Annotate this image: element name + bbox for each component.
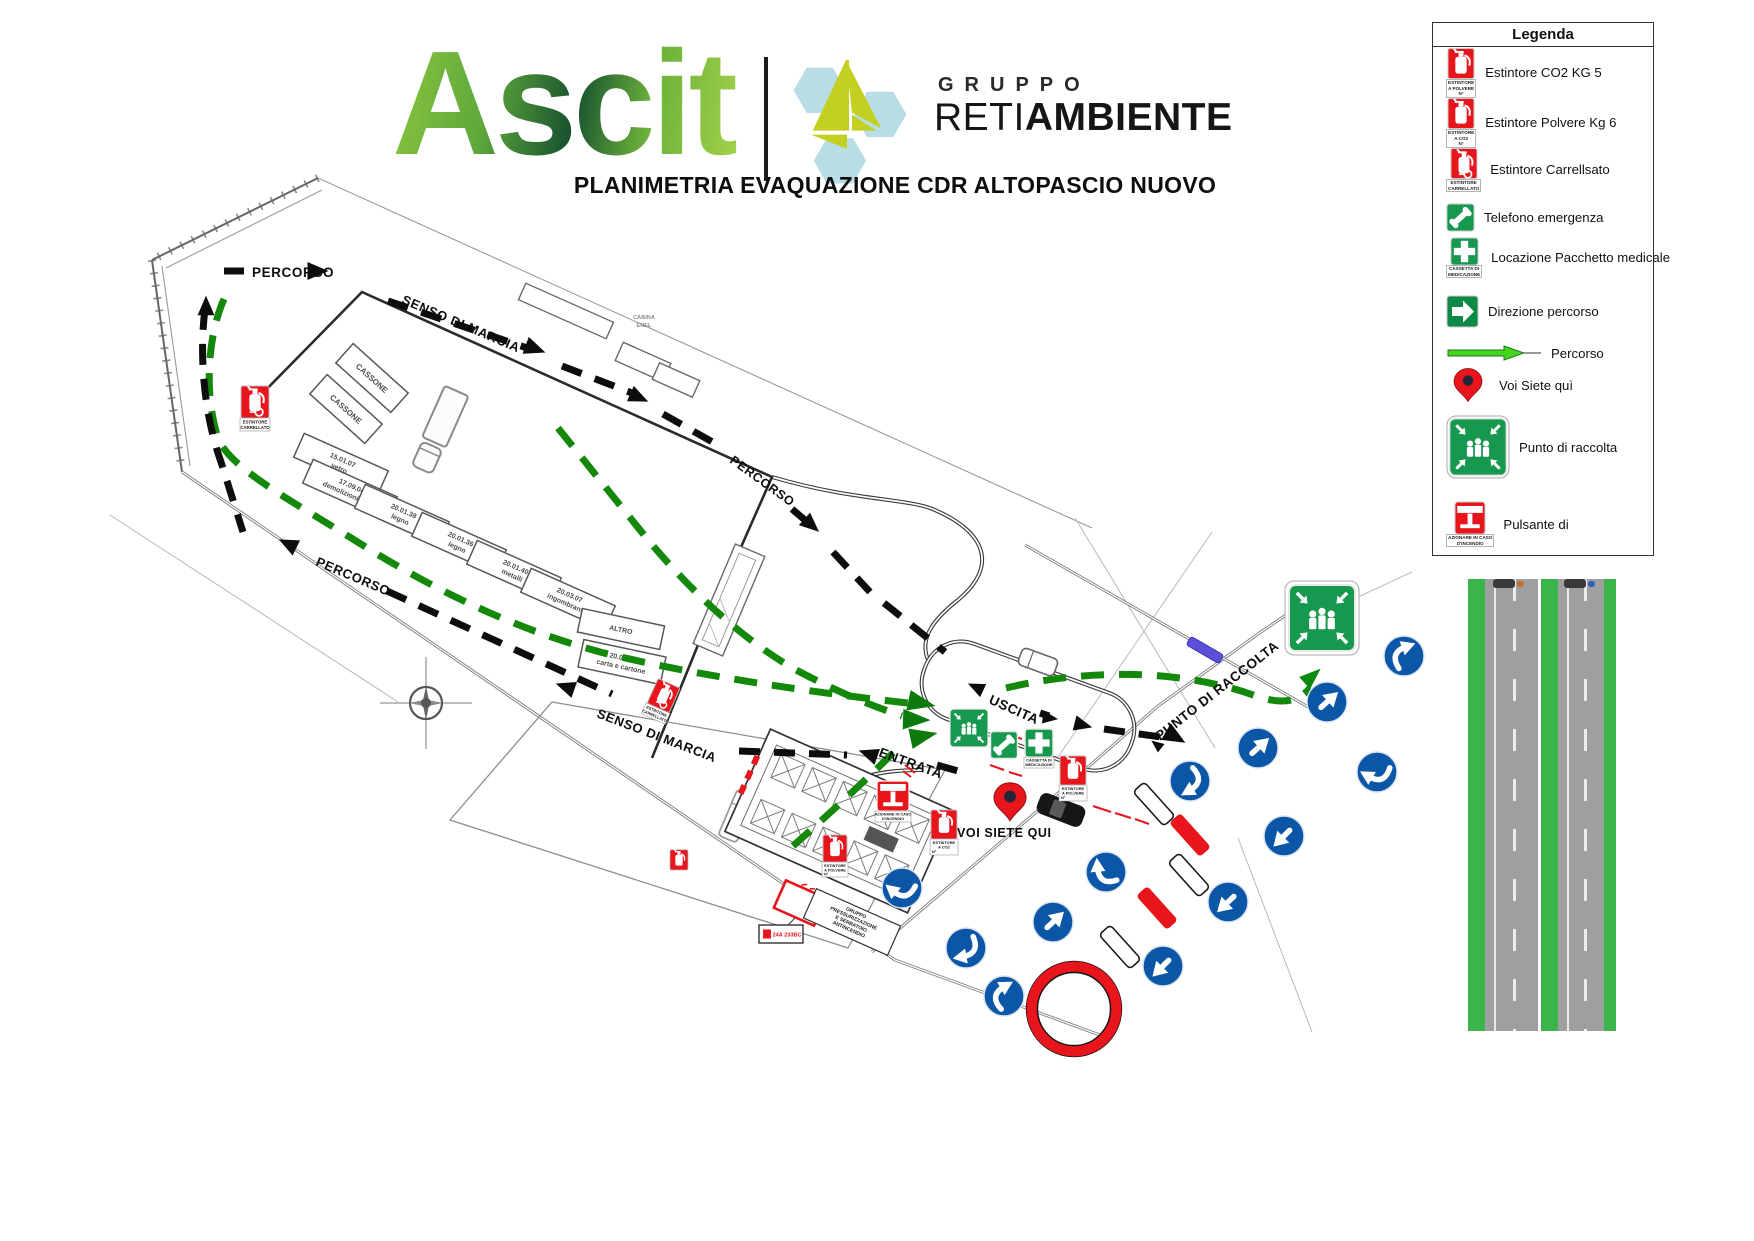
cabina-enel-structures: CABINA ENEL — [518, 283, 699, 397]
svg-text:ESTINTORE: ESTINTORE — [243, 420, 268, 425]
property-fence — [152, 178, 322, 472]
alarm-button-sign: AZIONARE IN CASO D'INCENDIO — [875, 781, 912, 822]
white-car — [1017, 647, 1059, 677]
svg-text:N°: N° — [824, 873, 829, 877]
extinguisher-powder-sign — [670, 850, 688, 870]
direction-sign — [1086, 852, 1126, 892]
traffic-routes-black — [198, 262, 1191, 771]
direction-sign — [984, 975, 1024, 1016]
svg-text:N°: N° — [1061, 795, 1066, 800]
direction-sign — [1238, 728, 1278, 768]
svg-text:AZIONARE IN CASO: AZIONARE IN CASO — [875, 813, 912, 817]
cabina-enel-label: ENEL — [637, 323, 653, 329]
direction-sign — [1170, 761, 1210, 802]
direction-sign — [1356, 752, 1397, 792]
percorso-left-label: PERCORSO — [314, 554, 393, 599]
percorso-top-label: PERCORSO — [252, 265, 334, 280]
compass — [380, 657, 472, 749]
direction-sign — [1208, 882, 1248, 922]
assembly-point-sign — [1285, 581, 1359, 655]
you-are-here-pin — [994, 783, 1026, 821]
direction-sign — [1264, 816, 1304, 856]
svg-text:MEDICAZIONE: MEDICAZIONE — [1025, 762, 1053, 767]
assembly-point-sign — [950, 709, 988, 747]
evacuation-plan-page: Ascit GRUPPO RETIAMBIENTE PLANIMETRIA EV… — [0, 0, 1754, 1241]
gates-and-medians — [1099, 636, 1224, 969]
extinguisher-class-label: 24A 233BC — [759, 925, 803, 943]
site-plan: CABINA ENEL CASSONE CASSONE — [0, 0, 1754, 1241]
direction-sign — [946, 928, 986, 968]
uscita-label: USCITA — [987, 692, 1041, 727]
direction-sign — [1384, 636, 1424, 676]
svg-text:A CO2: A CO2 — [938, 845, 951, 850]
extinguisher-wheeled-sign: ESTINTORE CARRELLATO — [240, 386, 270, 431]
svg-text:N°: N° — [932, 849, 937, 854]
direction-sign — [1143, 946, 1183, 986]
extinguisher-powder-sign: ESTINTORE A POLVERE N° — [1059, 756, 1087, 801]
direction-sign — [881, 868, 922, 908]
senso-di-marcia-top-label: SENSO DI MARCIA — [400, 292, 523, 355]
svg-text:CARRELLATO: CARRELLATO — [240, 425, 270, 430]
direction-sign — [1307, 682, 1347, 722]
roundabout-symbol — [1027, 962, 1122, 1057]
emergency-phone-sign — [991, 732, 1018, 759]
svg-text:24A 233BC: 24A 233BC — [772, 933, 801, 939]
weighbridge — [693, 544, 765, 656]
cabina-enel-label: CABINA — [633, 315, 655, 321]
svg-text:ESTINTORE: ESTINTORE — [824, 864, 846, 868]
first-aid-kit-sign: CASSETTA DI MEDICAZIONE — [1024, 729, 1054, 768]
voi-siete-qui-label: VOI SIETE QUI — [957, 826, 1052, 840]
extinguisher-co2-sign: ESTINTORE A CO2 N° — [930, 810, 958, 855]
direction-sign — [1033, 902, 1073, 942]
svg-text:D'INCENDIO: D'INCENDIO — [882, 817, 904, 821]
extinguisher-powder-sign: ESTINTORE A POLVERE N° — [822, 835, 848, 877]
truck — [410, 386, 469, 475]
